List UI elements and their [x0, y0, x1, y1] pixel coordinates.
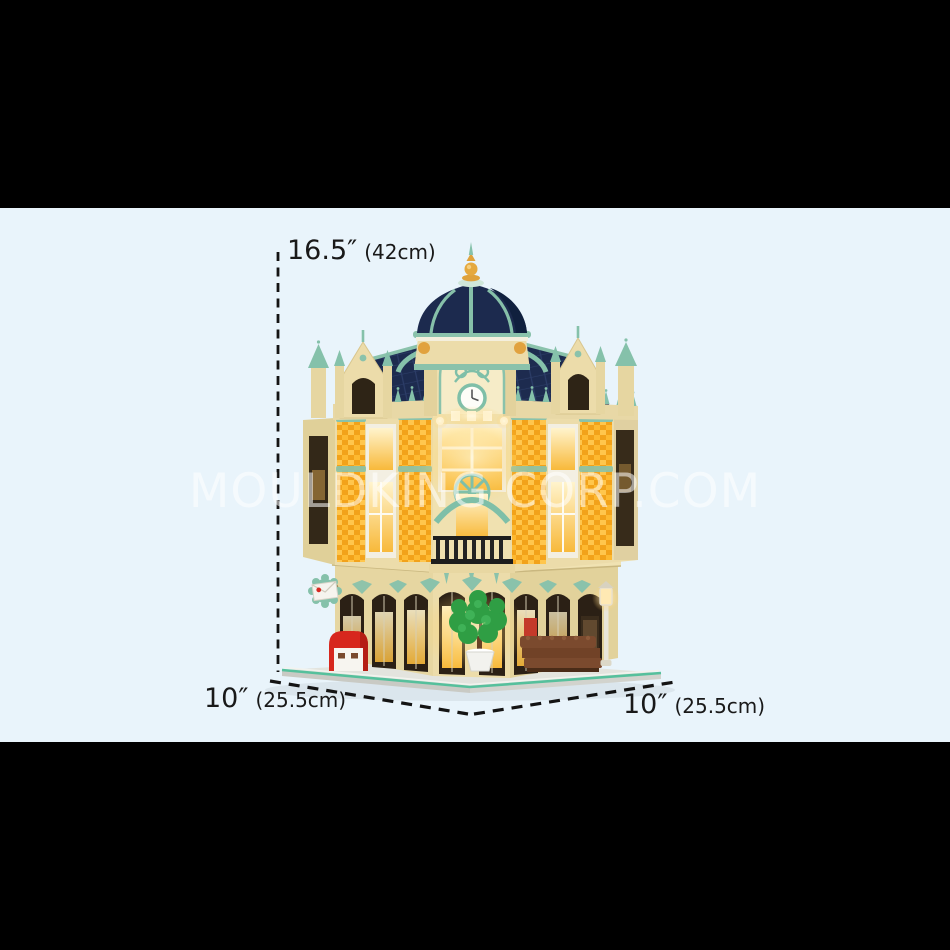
- base-left-metric: (25.5cm): [255, 688, 346, 712]
- letterbox-top: [0, 0, 950, 208]
- base-left-dimension-label: 10″(25.5cm): [204, 685, 346, 713]
- height-metric: (42cm): [364, 240, 436, 264]
- height-dimension-label: 16.5″(42cm): [287, 237, 436, 265]
- base-left-value: 10″: [204, 683, 248, 714]
- base-right-value: 10″: [623, 689, 667, 720]
- base-right-metric: (25.5cm): [674, 694, 765, 718]
- watermark: MOULDKING CORP.COM: [0, 464, 950, 519]
- letterbox-bottom: [0, 742, 950, 950]
- height-value: 16.5″: [287, 235, 357, 266]
- base-right-dimension-label: 10″(25.5cm): [623, 691, 765, 719]
